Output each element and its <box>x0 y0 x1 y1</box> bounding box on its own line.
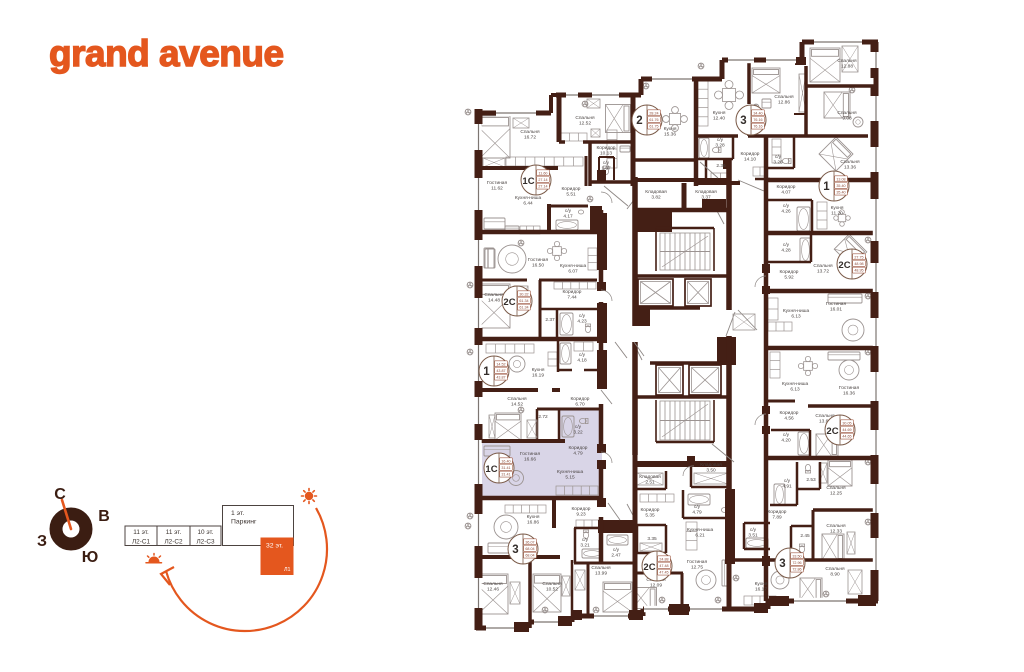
svg-text:Кухня16.19: Кухня16.19 <box>532 367 545 379</box>
svg-text:Паркинг: Паркинг <box>231 519 257 526</box>
svg-text:32 эт.: 32 эт. <box>266 543 283 550</box>
svg-text:68.04: 68.04 <box>525 547 534 551</box>
svg-text:24.88: 24.88 <box>659 557 668 561</box>
svg-text:35.40: 35.40 <box>836 184 845 188</box>
svg-text:61.34: 61.34 <box>519 299 528 303</box>
svg-text:Л1: Л1 <box>284 567 291 573</box>
svg-text:В: В <box>98 508 110 525</box>
svg-text:2.72: 2.72 <box>538 414 548 420</box>
svg-text:48.98: 48.98 <box>854 262 863 266</box>
svg-text:Ю: Ю <box>82 549 99 566</box>
svg-text:31.41: 31.41 <box>501 466 510 470</box>
svg-text:2.53: 2.53 <box>806 477 816 483</box>
svg-text:1: 1 <box>823 181 830 193</box>
svg-text:36.07: 36.07 <box>525 540 534 544</box>
svg-text:31.41: 31.41 <box>501 473 510 477</box>
svg-text:16.40: 16.40 <box>501 459 510 463</box>
svg-text:2С: 2С <box>643 562 655 573</box>
svg-text:14.52: 14.52 <box>496 362 505 366</box>
svg-text:2.37: 2.37 <box>545 317 555 323</box>
svg-text:76.16: 76.16 <box>753 125 762 129</box>
svg-text:Л2-С1: Л2-С1 <box>132 539 150 546</box>
svg-text:27.14: 27.14 <box>538 185 547 189</box>
svg-text:grand avenue: grand avenue <box>49 33 284 74</box>
svg-text:1 эт.: 1 эт. <box>231 510 244 517</box>
svg-text:2С: 2С <box>503 297 515 308</box>
svg-text:Кухня12.40: Кухня12.40 <box>713 110 726 122</box>
svg-text:34.40: 34.40 <box>753 111 762 115</box>
svg-text:Л2-С3: Л2-С3 <box>196 539 214 546</box>
svg-text:Кухня15.36: Кухня15.36 <box>664 126 677 138</box>
svg-text:47.48: 47.48 <box>659 564 668 568</box>
svg-text:1: 1 <box>483 366 490 378</box>
svg-text:11.60: 11.60 <box>539 171 548 175</box>
svg-text:44.65: 44.65 <box>842 435 851 439</box>
svg-text:Л2-С2: Л2-С2 <box>164 539 182 546</box>
svg-text:3: 3 <box>779 558 785 570</box>
svg-text:30.32: 30.32 <box>519 292 528 296</box>
svg-text:61.34: 61.34 <box>519 306 528 310</box>
svg-text:2С: 2С <box>838 260 850 271</box>
svg-text:1С: 1С <box>522 176 534 187</box>
svg-text:76.16: 76.16 <box>753 118 762 122</box>
svg-text:1С: 1С <box>485 464 497 475</box>
svg-text:72.86: 72.86 <box>792 568 801 572</box>
svg-text:С: С <box>54 486 66 503</box>
svg-text:48.95: 48.95 <box>854 269 863 273</box>
svg-text:68.04: 68.04 <box>525 554 534 558</box>
svg-text:43.87: 43.87 <box>496 376 505 380</box>
svg-text:13.08: 13.08 <box>836 177 845 181</box>
svg-text:61.75: 61.75 <box>649 125 658 129</box>
svg-text:28.24: 28.24 <box>649 111 658 115</box>
svg-text:З: З <box>37 533 47 550</box>
svg-text:3.35: 3.35 <box>647 536 657 542</box>
svg-text:43.87: 43.87 <box>496 369 505 373</box>
svg-text:27.75: 27.75 <box>854 255 863 259</box>
svg-text:2: 2 <box>636 115 642 127</box>
svg-text:47.45: 47.45 <box>659 571 668 575</box>
svg-text:61.76: 61.76 <box>649 118 658 122</box>
svg-text:3: 3 <box>512 544 518 556</box>
svg-text:44.69: 44.69 <box>842 428 851 432</box>
svg-text:2С: 2С <box>826 426 838 437</box>
svg-text:11 эт.: 11 эт. <box>166 529 182 536</box>
svg-text:11 эт.: 11 эт. <box>133 529 149 536</box>
svg-text:72.96: 72.96 <box>792 561 801 565</box>
svg-text:30.05: 30.05 <box>842 421 851 425</box>
svg-text:3: 3 <box>740 115 746 127</box>
svg-text:35.40: 35.40 <box>836 191 845 195</box>
svg-text:2.36: 2.36 <box>716 163 726 169</box>
svg-text:2.45: 2.45 <box>800 533 810 539</box>
svg-text:Кухня11.20: Кухня11.20 <box>831 205 844 217</box>
svg-text:Кухня16.17: Кухня16.17 <box>755 581 768 593</box>
svg-text:Кухня16.86: Кухня16.86 <box>527 514 540 526</box>
svg-text:27.14: 27.14 <box>538 178 547 182</box>
svg-text:10 эт.: 10 эт. <box>198 529 214 536</box>
svg-text:33.50: 33.50 <box>792 554 801 558</box>
